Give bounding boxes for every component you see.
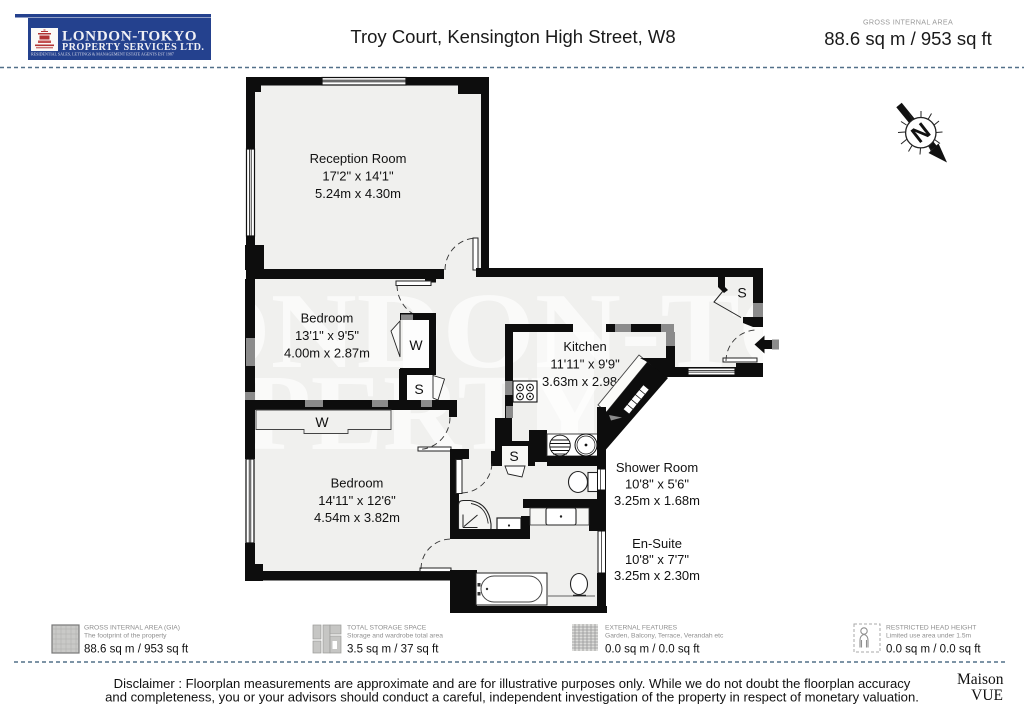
svg-text:S: S <box>414 381 423 397</box>
svg-text:and completeness, you or your: and completeness, you or your advisors s… <box>105 690 919 705</box>
svg-text:Bedroom: Bedroom <box>301 311 354 326</box>
svg-text:3.5 sq m / 37 sq ft: 3.5 sq m / 37 sq ft <box>347 644 439 656</box>
svg-text:GROSS INTERNAL AREA (GIA): GROSS INTERNAL AREA (GIA) <box>84 625 180 632</box>
svg-text:S: S <box>509 448 518 464</box>
svg-text:0.0 sq m / 0.0 sq ft: 0.0 sq m / 0.0 sq ft <box>886 644 981 656</box>
svg-text:TOTAL STORAGE SPACE: TOTAL STORAGE SPACE <box>347 625 427 632</box>
svg-text:GROSS INTERNAL AREA: GROSS INTERNAL AREA <box>863 18 953 27</box>
svg-text:3.25m x 1.68m: 3.25m x 1.68m <box>614 493 700 508</box>
svg-text:Limited use area under 1.5m: Limited use area under 1.5m <box>886 633 972 640</box>
svg-text:17'2" x 14'1": 17'2" x 14'1" <box>322 169 394 184</box>
svg-text:11'11" x 9'9": 11'11" x 9'9" <box>550 357 620 372</box>
svg-text:88.6 sq m / 953 sq ft: 88.6 sq m / 953 sq ft <box>824 28 992 49</box>
svg-text:3.25m x 2.30m: 3.25m x 2.30m <box>614 568 700 583</box>
svg-text:W: W <box>315 414 329 430</box>
svg-text:4.00m x 2.87m: 4.00m x 2.87m <box>284 346 370 361</box>
svg-text:The footprint of the property: The footprint of the property <box>84 633 167 640</box>
svg-text:Shower Room: Shower Room <box>616 460 698 475</box>
svg-text:S: S <box>737 285 746 301</box>
svg-text:4.54m x 3.82m: 4.54m x 3.82m <box>314 510 400 525</box>
svg-text:10'8" x 5'6": 10'8" x 5'6" <box>625 477 689 492</box>
svg-text:W: W <box>409 337 423 353</box>
svg-text:Storage and wardrobe total are: Storage and wardrobe total area <box>347 633 443 640</box>
svg-text:EXTERNAL FEATURES: EXTERNAL FEATURES <box>605 625 678 632</box>
svg-text:Reception Room: Reception Room <box>310 151 407 166</box>
svg-text:Maison: Maison <box>957 671 1004 688</box>
svg-text:En-Suite: En-Suite <box>632 536 682 551</box>
svg-text:VUE: VUE <box>971 687 1003 704</box>
svg-text:Troy Court, Kensington High St: Troy Court, Kensington High Street, W8 <box>350 26 675 47</box>
svg-text:14'11" x 12'6": 14'11" x 12'6" <box>318 493 396 508</box>
svg-text:10'8" x 7'7": 10'8" x 7'7" <box>625 552 689 567</box>
svg-text:13'1" x 9'5": 13'1" x 9'5" <box>295 328 359 343</box>
svg-text:Garden, Balcony, Terrace, Vera: Garden, Balcony, Terrace, Verandah etc <box>605 633 724 640</box>
svg-text:5.24m x 4.30m: 5.24m x 4.30m <box>315 186 401 201</box>
svg-text:88.6 sq m / 953 sq ft: 88.6 sq m / 953 sq ft <box>84 644 189 656</box>
svg-text:Kitchen: Kitchen <box>563 339 606 354</box>
svg-text:RESTRICTED HEAD HEIGHT: RESTRICTED HEAD HEIGHT <box>886 625 976 632</box>
svg-text:0.0 sq m / 0.0 sq ft: 0.0 sq m / 0.0 sq ft <box>605 644 700 656</box>
svg-text:Bedroom: Bedroom <box>331 476 384 491</box>
